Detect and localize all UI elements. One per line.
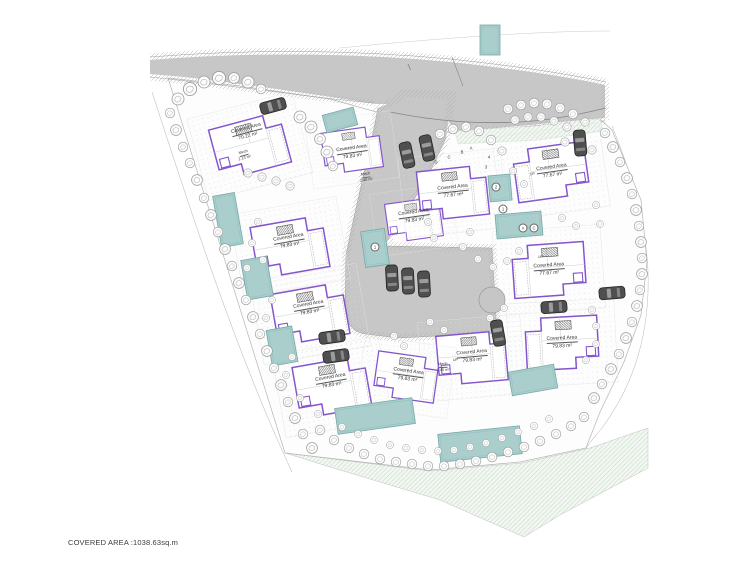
tree-icon [520, 180, 527, 187]
tree-icon [614, 349, 624, 359]
covered-area-total: COVERED AREA :1038.63sq.m [68, 538, 178, 547]
tree-icon [486, 135, 496, 145]
plot-letter-marker: A [519, 224, 528, 233]
tree-icon [589, 393, 600, 404]
tree-icon [550, 117, 558, 125]
tree-icon [286, 182, 294, 190]
tree-icon [426, 318, 433, 325]
tree-icon [375, 454, 385, 464]
grid-marker: 4 [488, 155, 490, 160]
tree-icon [459, 243, 466, 250]
tree-icon [244, 169, 252, 177]
tree-icon [514, 428, 521, 435]
tree-icon [344, 443, 354, 453]
tree-icon [627, 317, 637, 327]
car-icon [541, 300, 568, 314]
car-icon [573, 130, 587, 157]
tree-icon [471, 456, 481, 466]
tree-icon [402, 444, 409, 451]
grid-marker: D [434, 160, 437, 165]
tree-icon [524, 113, 532, 121]
tree-icon [537, 113, 545, 121]
tree-icon [634, 221, 644, 231]
tree-icon [212, 71, 225, 84]
tree-icon [262, 314, 269, 321]
plot-number-marker: 1 [499, 205, 508, 214]
tree-icon [530, 422, 537, 429]
tree-icon [290, 413, 301, 424]
tree-icon [558, 214, 565, 221]
tree-icon [199, 193, 209, 203]
tree-icon [259, 256, 266, 263]
tree-icon [516, 100, 526, 110]
tree-icon [592, 322, 599, 329]
tree-icon [276, 380, 287, 391]
tree-icon [551, 429, 561, 439]
tree-icon [315, 134, 326, 145]
pool-icon [480, 25, 500, 55]
tree-icon [503, 447, 513, 457]
house-area-label: Covered Area 77.67 m² [533, 261, 564, 277]
tree-icon [566, 421, 576, 431]
tree-icon [597, 379, 607, 389]
tree-icon [268, 296, 275, 303]
tree-icon [296, 394, 303, 401]
tree-icon [608, 142, 619, 153]
site-plan-drawing [0, 0, 750, 566]
tree-icon [178, 142, 188, 152]
tree-icon [498, 434, 505, 441]
tree-icon [579, 412, 589, 422]
tree-icon [563, 123, 571, 131]
tree-icon [474, 126, 484, 136]
house-area-label: Covered Area 79.83 m² [546, 334, 577, 349]
house-area-label: Covered Area 79.83 m² [456, 348, 488, 364]
tree-icon [359, 449, 369, 459]
tree-icon [622, 173, 633, 184]
tree-icon [568, 109, 578, 119]
tree-icon [229, 73, 240, 84]
grid-marker: 3 [485, 165, 487, 170]
tree-icon [314, 410, 321, 417]
tree-icon [213, 227, 223, 237]
car-icon [417, 271, 430, 298]
tree-icon [572, 222, 579, 229]
tree-icon [248, 239, 255, 246]
tree-icon [600, 128, 610, 138]
tree-icon [474, 255, 481, 262]
tree-icon [206, 210, 217, 221]
tree-icon [183, 82, 196, 95]
plot-number-marker: 1 [371, 243, 380, 252]
tree-icon [503, 257, 510, 264]
tree-icon [234, 278, 245, 289]
tree-icon [606, 364, 617, 375]
tree-icon [423, 461, 433, 471]
tree-icon [288, 353, 295, 360]
tree-icon [592, 201, 599, 208]
tree-icon [489, 263, 496, 270]
tree-icon [241, 295, 251, 305]
tree-icon [282, 371, 289, 378]
tree-icon [439, 461, 449, 471]
tree-icon [248, 312, 259, 323]
up-stair-label: UP [453, 358, 458, 362]
tree-icon [615, 157, 625, 167]
tree-icon [269, 363, 279, 373]
tree-icon [255, 329, 265, 339]
tree-icon [466, 228, 473, 235]
tree-icon [329, 435, 339, 445]
tree-icon [321, 146, 333, 158]
tree-icon [621, 333, 632, 344]
tree-icon [637, 269, 648, 280]
tree-icon [400, 342, 407, 349]
tree-icon [448, 124, 458, 134]
tree-icon [328, 161, 338, 171]
tree-icon [509, 167, 516, 174]
tree-icon [498, 147, 506, 155]
tree-icon [588, 146, 596, 154]
tree-icon [529, 98, 539, 108]
tree-icon [430, 234, 437, 241]
tree-icon [171, 125, 182, 136]
tree-icon [636, 237, 647, 248]
tree-icon [627, 189, 637, 199]
tree-icon [519, 442, 529, 452]
tree-icon [370, 436, 377, 443]
tree-icon [440, 326, 447, 333]
tree-icon [354, 430, 361, 437]
car-icon [401, 268, 414, 295]
tree-icon [588, 306, 595, 313]
tree-icon [165, 108, 175, 118]
tree-icon [307, 443, 318, 454]
mech-area-label: Mech 2.40 m² [359, 171, 373, 183]
tree-icon [482, 439, 489, 446]
tree-icon [185, 158, 195, 168]
tree-icon [418, 446, 425, 453]
tree-icon [256, 84, 266, 94]
tree-icon [592, 340, 599, 347]
tree-icon [511, 116, 519, 124]
tree-icon [596, 220, 603, 227]
tree-icon [254, 218, 261, 225]
tree-icon [503, 104, 513, 114]
car-icon [385, 265, 398, 292]
tree-icon [461, 122, 471, 132]
tree-icon [545, 415, 552, 422]
tree-icon [632, 301, 643, 312]
up-stair-label: UP [538, 255, 543, 259]
tree-icon [582, 356, 589, 363]
tree-icon [515, 247, 522, 254]
tree-icon [172, 93, 184, 105]
tree-icon [487, 452, 497, 462]
tree-icon [305, 121, 317, 133]
grid-marker: B [461, 150, 464, 155]
tree-icon [294, 111, 306, 123]
plot-number-marker: 2 [492, 183, 501, 192]
tree-icon [298, 429, 308, 439]
grid-marker: A [470, 146, 473, 151]
tree-icon [258, 173, 266, 181]
tree-icon [450, 446, 457, 453]
tree-icon [243, 264, 250, 271]
tree-icon [262, 346, 273, 357]
tree-icon [635, 285, 645, 295]
tree-icon [407, 459, 417, 469]
tree-icon [198, 76, 210, 88]
tree-icon [220, 244, 231, 255]
tree-icon [500, 304, 507, 311]
tree-icon [390, 332, 397, 339]
tree-icon [227, 261, 237, 271]
tree-icon [561, 138, 569, 146]
tree-icon [283, 397, 293, 407]
tree-icon [435, 129, 445, 139]
tree-icon [434, 447, 441, 454]
tree-icon [455, 459, 465, 469]
tree-icon [386, 441, 393, 448]
tree-icon [535, 436, 545, 446]
mech-area-label: Mech 2.40 m² [436, 362, 449, 373]
tree-icon [315, 425, 325, 435]
pool-water [480, 25, 500, 55]
tree-icon [542, 99, 552, 109]
tree-icon [555, 103, 565, 113]
car-icon [599, 286, 626, 300]
tree-icon [391, 457, 401, 467]
site-plan-page: Covered Area 70.22 m² Covered Area 79.83… [0, 0, 750, 566]
tree-icon [338, 423, 345, 430]
tree-icon [466, 443, 473, 450]
up-stair-label: UP [530, 172, 535, 177]
tree-icon [581, 118, 589, 126]
tree-icon [192, 175, 203, 186]
tree-icon [631, 205, 642, 216]
plot-letter-marker: C [530, 224, 539, 233]
tree-icon [272, 177, 280, 185]
tree-icon [637, 253, 647, 263]
tree-icon [242, 76, 254, 88]
grid-marker: C [447, 155, 450, 160]
